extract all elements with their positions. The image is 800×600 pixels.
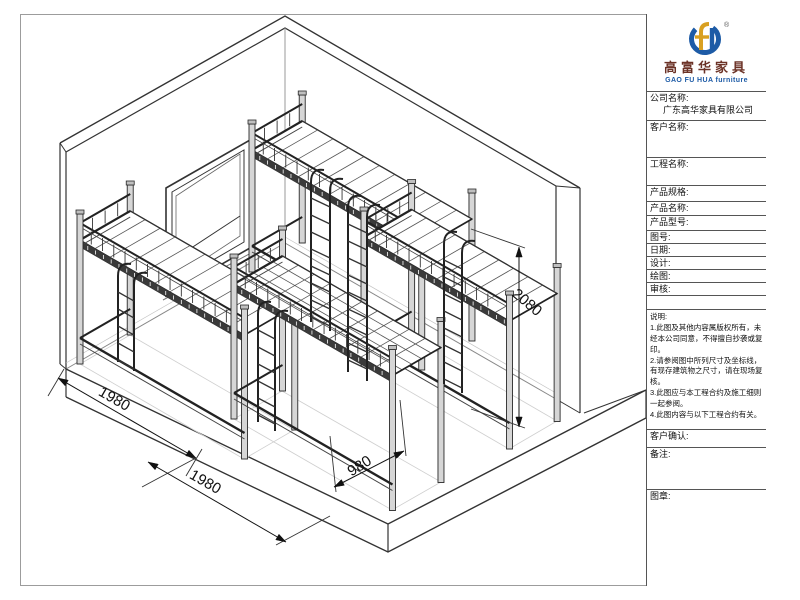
field-stamp: 图章: (647, 490, 766, 586)
field-label: 设计: (650, 258, 671, 268)
gfh-logo-icon: ® (684, 19, 730, 59)
field-remarks: 备注: (647, 448, 766, 490)
dimension-bay2: 1980 (142, 458, 330, 545)
field-label: 绘图: (650, 271, 671, 281)
field-company-name: 公司名称: 广东高华家具有限公司 (647, 92, 766, 121)
field-drawing-no: 图号: (647, 231, 766, 244)
field-empty (647, 296, 766, 310)
field-design: 设计: (647, 257, 766, 270)
field-product-model: 产品型号: (647, 216, 766, 231)
field-product-spec: 产品规格: (647, 186, 766, 202)
dimension-bay1: 1980 (48, 369, 202, 476)
title-block: ® 高富华家具 GAO FU HUA furniture 公司名称: 广东高华家… (646, 14, 766, 586)
field-review: 审核: (647, 283, 766, 296)
field-label: 日期: (650, 245, 671, 255)
field-label: 客户确认: (650, 431, 689, 441)
dimension-label: 980 (344, 452, 374, 480)
field-label: 公司名称: (650, 93, 689, 103)
field-label: 工程名称: (650, 159, 689, 169)
brand-name-en: GAO FU HUA furniture (665, 76, 748, 85)
note-line: 4.此图内容与以下工程合约有关。 (650, 410, 763, 421)
dimension-label: 1980 (187, 466, 224, 497)
field-label: 图号: (650, 232, 671, 242)
field-draft: 绘图: (647, 270, 766, 283)
note-line: 2.请参阅图中所列尺寸及坐标线，有现存建筑物之尺寸，请在现场复核。 (650, 356, 763, 389)
brand-name-cn: 高富华家具 (664, 60, 749, 77)
field-label: 图章: (650, 491, 671, 501)
notes-title: 说明: (650, 312, 763, 323)
note-line: 3.此图应与本工程合约及施工细则一起参阅。 (650, 388, 763, 410)
notes-box: 说明: 1.此图及其他内容属版权所有，未经本公司同意，不得擅自抄袭或复印。 2.… (647, 310, 766, 430)
registered-mark: ® (724, 21, 730, 29)
floor-guide-lines (80, 335, 557, 510)
field-project-name: 工程名称: (647, 158, 766, 186)
note-line: 1.此图及其他内容属版权所有，未经本公司同意，不得擅自抄袭或复印。 (650, 323, 763, 356)
logo-box: ® 高富华家具 GAO FU HUA furniture (647, 14, 766, 92)
field-date: 日期: (647, 244, 766, 257)
field-label: 产品规格: (650, 187, 689, 197)
field-customer-confirm: 客户确认: (647, 430, 766, 448)
field-product-name: 产品名称: (647, 202, 766, 216)
isometric-room-drawing: 198019809802080 (20, 14, 646, 585)
field-label: 审核: (650, 284, 671, 294)
field-label: 产品型号: (650, 217, 689, 227)
field-label: 备注: (650, 449, 671, 459)
field-label: 客户名称: (650, 122, 689, 132)
field-value: 广东高华家具有限公司 (650, 105, 763, 117)
field-label: 产品名称: (650, 203, 689, 213)
field-customer-name: 客户名称: (647, 121, 766, 158)
